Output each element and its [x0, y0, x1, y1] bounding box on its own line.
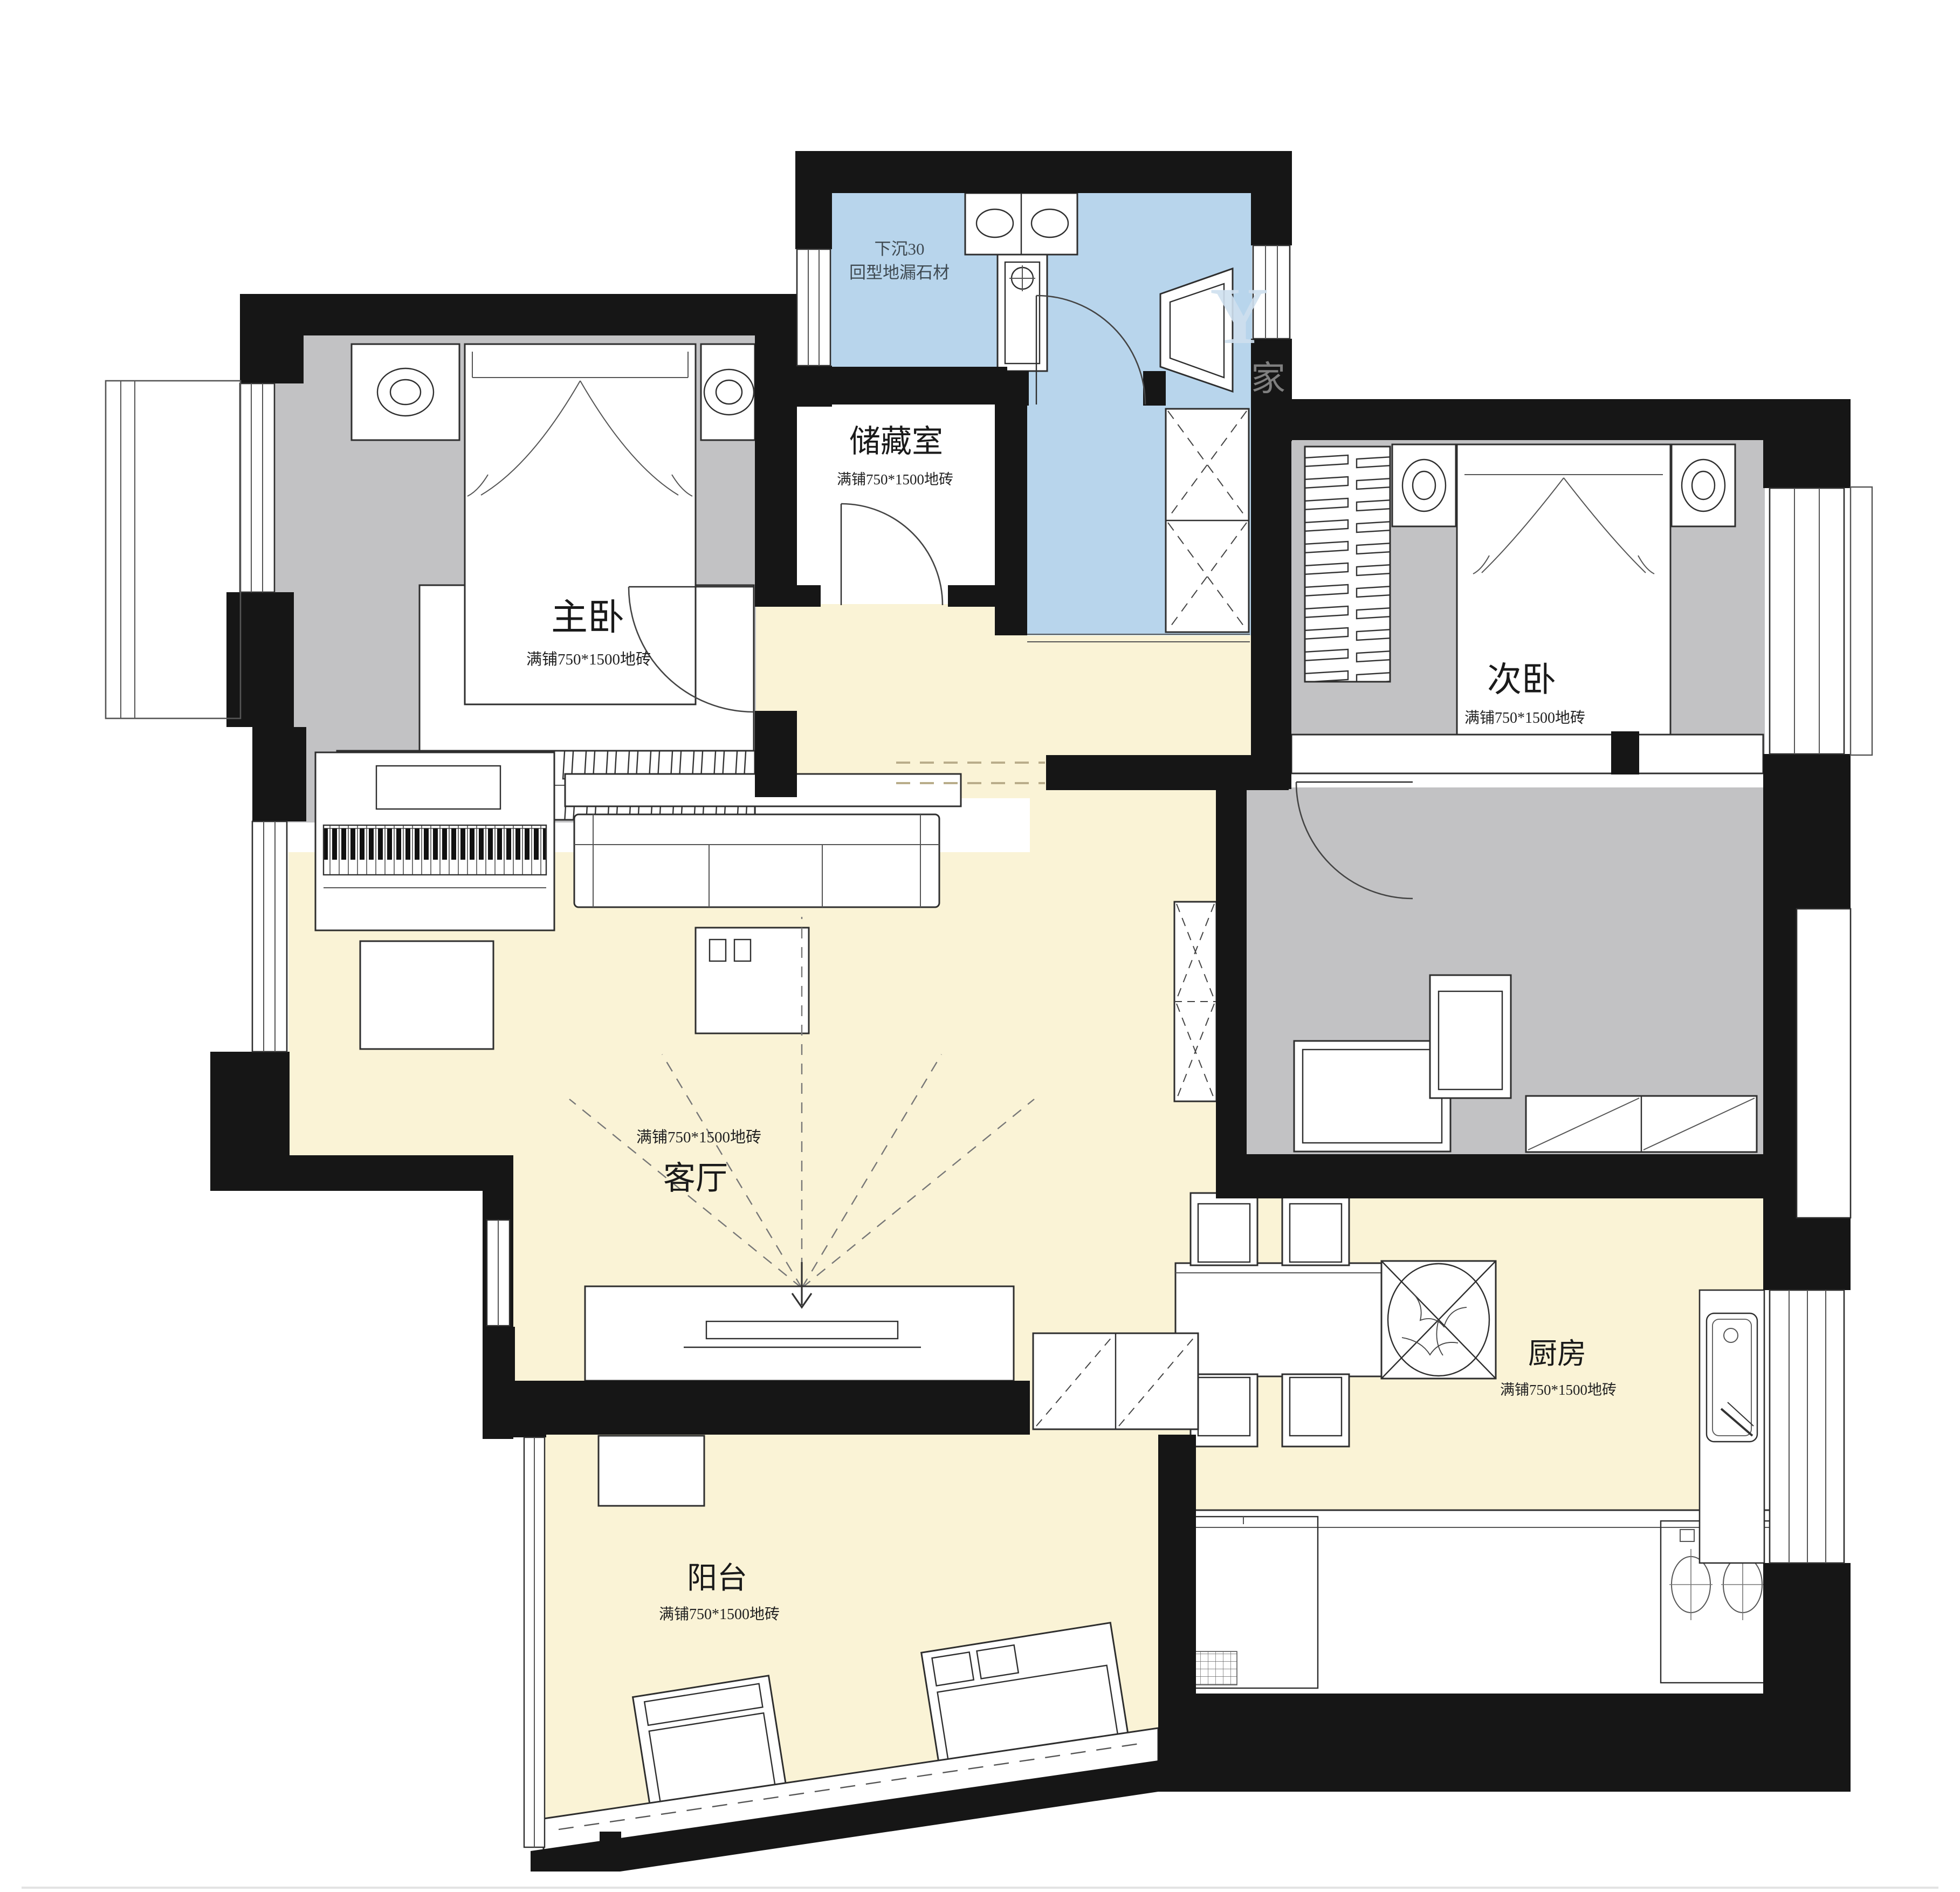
kitchen-right-window [1770, 1290, 1844, 1563]
tile-second: 满铺750*1500地砖 [1464, 709, 1585, 726]
watermark-letter: Y [1210, 271, 1268, 361]
tile-master: 满铺750*1500地砖 [526, 650, 651, 668]
coffee-table [696, 928, 809, 1033]
bath-annotation-1: 下沉30 [875, 239, 925, 258]
living-left-window [252, 821, 287, 1052]
label-storage: 储藏室 [849, 424, 943, 459]
tile-living: 满铺750*1500地砖 [636, 1128, 761, 1146]
tile-kitchen: 满铺750*1500地砖 [1500, 1382, 1617, 1398]
nightstand-left-2 [1392, 444, 1456, 526]
tile-storage: 满铺750*1500地砖 [837, 471, 953, 488]
dining-table [1175, 1263, 1381, 1376]
nightstand-right [701, 344, 755, 440]
watermark-char: 家 [1251, 360, 1285, 398]
bath-left-window [797, 249, 830, 366]
study-chair [1430, 975, 1511, 1098]
piano [315, 752, 554, 930]
vanity-double-sink [965, 193, 1077, 255]
pedestal-basin [998, 255, 1047, 371]
floorplan-page: 主卧 满铺750*1500地砖 储藏室 满铺750*1500地砖 次卧 满铺75… [0, 0, 1960, 1892]
master-bay-sill [106, 381, 240, 718]
nightstand-left [352, 344, 459, 440]
label-balcony: 阳台 [687, 1562, 747, 1595]
label-living: 客厅 [663, 1161, 728, 1196]
sofa [574, 814, 939, 907]
tile-balcony: 满铺750*1500地砖 [659, 1606, 780, 1623]
balcony-shoe-cabinet [599, 1436, 704, 1506]
study-low-cabinet [1526, 1096, 1757, 1152]
floorplan-drawing: 主卧 满铺750*1500地砖 储藏室 满铺750*1500地砖 次卧 满铺75… [0, 0, 1960, 1892]
label-master: 主卧 [551, 597, 624, 638]
study-desk [1294, 1041, 1450, 1151]
study-bay-niche [1797, 909, 1851, 1218]
kitchen-side-counter [1700, 1290, 1764, 1563]
balcony-left-window [524, 1437, 545, 1847]
lower-left-window [487, 1220, 510, 1326]
hall-tall-cabinet [1174, 902, 1216, 1101]
nightstand-right-2 [1672, 444, 1735, 526]
label-kitchen: 厨房 [1528, 1338, 1586, 1370]
second-bottom-cabinet [1291, 735, 1763, 773]
second-bay-window [1770, 487, 1872, 755]
second-wardrobe [1305, 447, 1390, 682]
foyer-cabinet [1166, 409, 1249, 632]
kitchen-low-cabinet [1033, 1333, 1198, 1429]
bath-annotation-2: 回型地漏石材 [849, 263, 950, 282]
master-bed [465, 344, 696, 704]
label-second: 次卧 [1487, 661, 1556, 699]
stone-side-table [1381, 1261, 1496, 1379]
piano-bench [360, 941, 493, 1049]
